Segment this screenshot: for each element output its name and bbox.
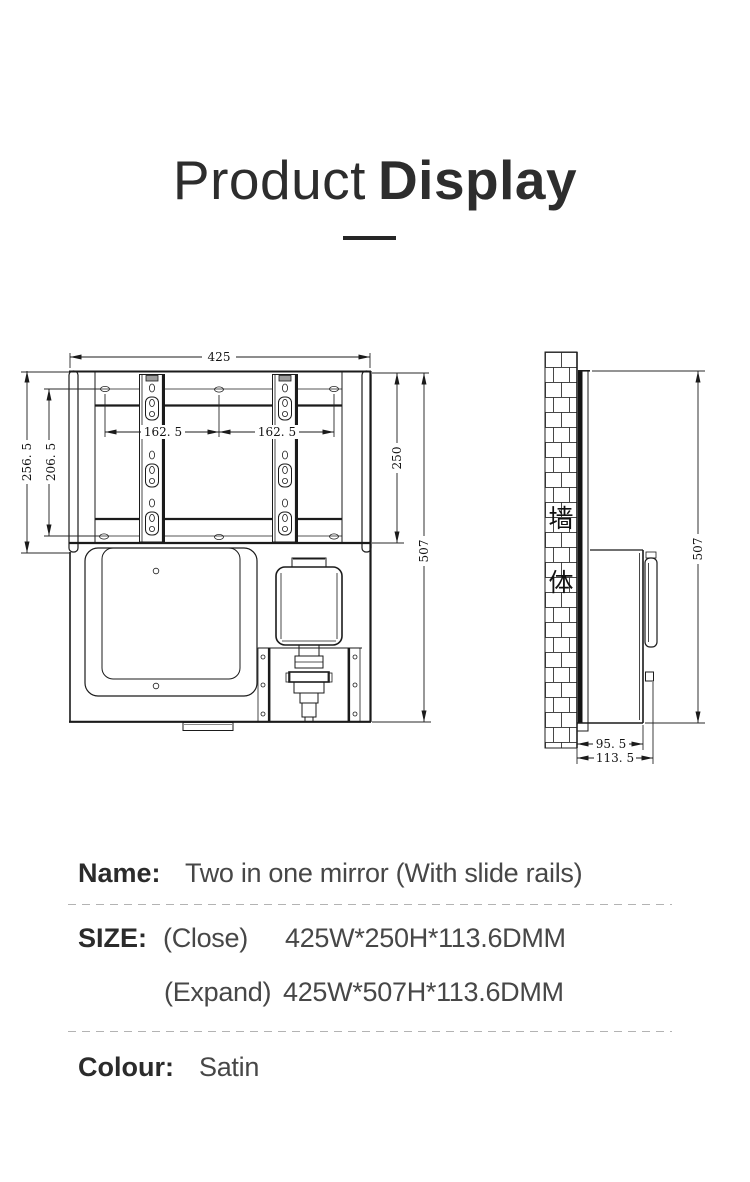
dim-depth-body-95: 95. 5: [596, 737, 627, 751]
slide-rail-left: [140, 375, 165, 543]
wall-label-top: 墙: [548, 504, 573, 533]
dim-height-closed-250: 250: [390, 447, 404, 470]
dim-height-256: 256. 5: [20, 443, 34, 481]
dim-hole-pitch-right: 162. 5: [258, 425, 296, 439]
size-label: SIZE:: [78, 923, 147, 954]
title-light: Product: [173, 149, 366, 211]
name-value: Two in one mirror (With slide rails): [185, 858, 582, 889]
slide-rail-right: [273, 375, 298, 543]
cabinet-profile: [577, 550, 657, 731]
colour-value: Satin: [199, 1052, 259, 1083]
product-display-page: ProductDisplay: [0, 0, 750, 1182]
technical-drawing: 425 162. 5 162. 5 256. 5: [0, 330, 750, 800]
dim-height-expanded-507-front: 507: [417, 540, 431, 563]
page-title: ProductDisplay: [0, 150, 750, 211]
dispenser-bottle: [276, 558, 342, 722]
size-close-row: SIZE: (Close) 425W*250H*113.6DMM: [0, 923, 750, 957]
side-view-dimensions: 507 95. 5 113. 5: [577, 371, 705, 765]
dim-width-425: 425: [208, 350, 231, 364]
colour-row: Colour: Satin: [0, 1052, 750, 1086]
mirror-panel-profile: [578, 371, 583, 723]
divider-2: [68, 1031, 672, 1032]
dim-hole-pitch-left: 162. 5: [144, 425, 182, 439]
title-underline: [343, 236, 396, 240]
size-close-value: 425W*250H*113.6DMM: [285, 923, 566, 954]
size-expand-prefix: (Expand): [164, 977, 271, 1008]
divider-1: [68, 904, 672, 905]
size-expand-row: (Expand) 425W*507H*113.6DMM: [0, 977, 750, 1011]
size-expand-value: 425W*507H*113.6DMM: [283, 977, 564, 1008]
dispenser-bracket-plate: [258, 648, 362, 722]
colour-label: Colour:: [78, 1052, 174, 1083]
wall-label-bottom: 体: [548, 568, 573, 597]
side-view-drawing: 墙 体 507: [545, 352, 705, 765]
dim-height-expanded-507-side: 507: [691, 538, 705, 561]
dim-depth-overall-113: 113. 5: [596, 751, 634, 765]
name-label: Name:: [78, 858, 161, 889]
bottom-tab: [183, 723, 233, 731]
name-row: Name: Two in one mirror (With slide rail…: [0, 858, 750, 892]
wall-hatch: [545, 352, 577, 748]
size-close-prefix: (Close): [163, 923, 248, 954]
dim-height-206: 206. 5: [44, 443, 58, 481]
title-bold: Display: [378, 149, 577, 211]
front-view-drawing: 425 162. 5 162. 5 256. 5: [20, 350, 431, 731]
